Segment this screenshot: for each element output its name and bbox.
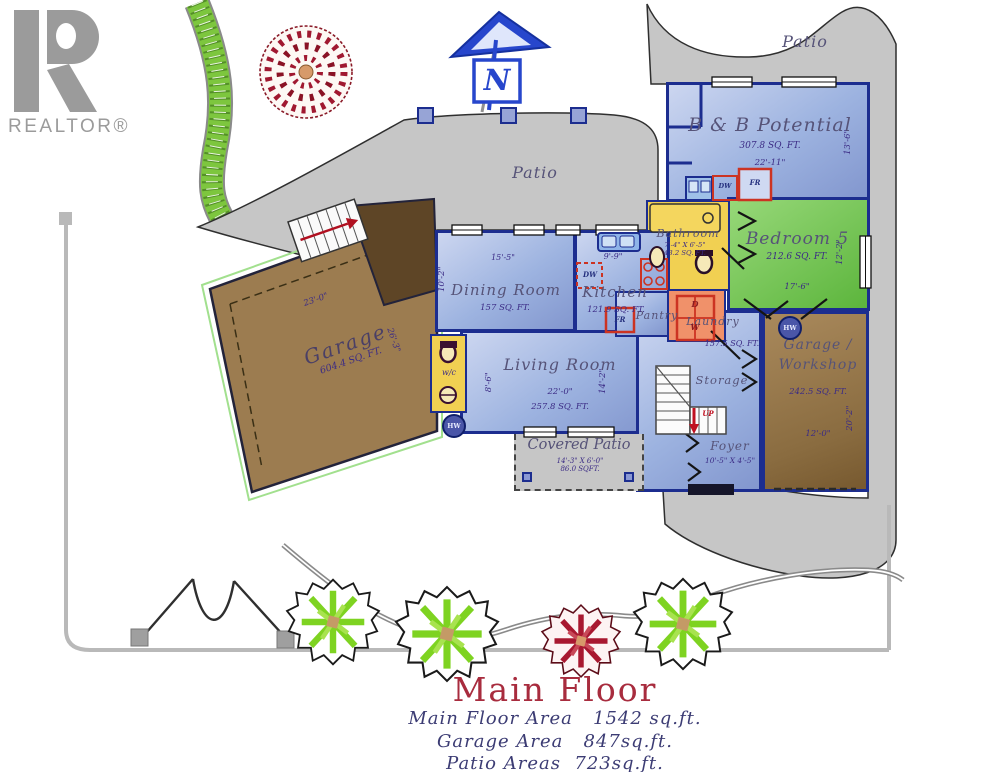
bnb-name: B & B Potential [680,116,860,136]
main-floor-area-line: Main Floor Area 1542 sq.ft. [330,708,780,729]
patio-posts [418,108,586,123]
north-label: N [474,63,520,97]
tree-green-icon [396,587,498,681]
tree-green-icon [634,579,732,669]
garage-area-line: Garage Area 847sq.ft. [330,731,780,752]
fence-post [59,212,72,225]
patio-post [624,472,634,482]
bnb-width: 22'-11" [700,159,840,168]
patio-post [522,472,532,482]
dining-name: Dining Room [440,283,572,299]
tree-green-icon [287,580,379,665]
floor-plan: B & B Potential 307.8 SQ. FT. 22'-11" 13… [0,0,1005,772]
bedroom5-name: Bedroom 5 [730,231,865,249]
bnb-fr-label: FR [741,179,769,186]
bathroom-area: 43.2 SQ. FT. [650,250,720,257]
storage-name: Storage [690,374,754,386]
kitchen-counter-dim: 9'-9" [588,253,638,261]
foyer-name: Foyer [702,440,758,453]
realtor-logo-icon [14,10,99,112]
kitchen-dw-label: DW [578,271,602,278]
stairs-up-label: UP [699,410,717,417]
covered-patio-dims: 14'-3" X 6'-0" [525,458,635,465]
tree-red-large [260,26,352,118]
bedroom5-depth: 12'-2" [836,227,845,277]
bnb-area: 307.8 SQ. FT. [700,142,840,151]
kitchen-area: 121.9 SQ. FT. [566,306,666,315]
gate [131,579,294,648]
patio-top-label: Patio [765,34,845,51]
bedroom5-width: 17'-6" [742,283,852,292]
patio-central-label: Patio [495,165,575,182]
wc-name: w/c [432,369,466,377]
bnb-dw-label: DW [712,183,738,190]
dining-depth: 10'-2" [438,254,447,304]
hot-water-tank: HW [442,414,466,438]
hall-area: 157.5 SQ. FT. [700,340,764,348]
kitchen-name: Kitchen [560,285,670,301]
living-right-dim: 14'-2" [599,356,608,406]
hot-water-tank: HW [778,316,802,340]
bathroom-dims: 7'-4" X 6'-5" [650,242,720,249]
hedge [197,3,221,217]
kitchen-fr-label: FR [607,316,633,323]
patio-area-line: Patio Areas 723sq.ft. [330,753,780,772]
workshop-depth: 20'-2" [846,393,855,443]
bnb-depth: 13'-6" [844,117,853,167]
garden-path [283,545,903,639]
covered-patio-name: Covered Patio [522,438,636,453]
plan-title: Main Floor [330,670,780,709]
workshop-name-2: Workshop [768,358,868,373]
dining-area: 157 SQ. FT. [445,304,565,313]
washer-label: W [680,323,710,331]
covered-patio-area: 86.0 SQFT. [525,466,635,473]
realtor-wordmark: REALTOR® [8,116,148,138]
north-arrow-icon [451,12,549,112]
living-left-dim: 8'-6" [485,357,494,407]
tree-red-icon [542,605,620,677]
bathroom-name: Bathroom [648,228,728,240]
living-name: Living Room [480,357,640,374]
dryer-label: D [680,300,710,308]
foyer-dims: 10'-5" X 4'-5" [694,457,766,465]
garage-width: 23'-0" [286,286,345,314]
workshop-name-1: Garage / [772,338,864,353]
entry-steps [288,199,368,262]
dining-width: 15'-5" [468,254,538,262]
